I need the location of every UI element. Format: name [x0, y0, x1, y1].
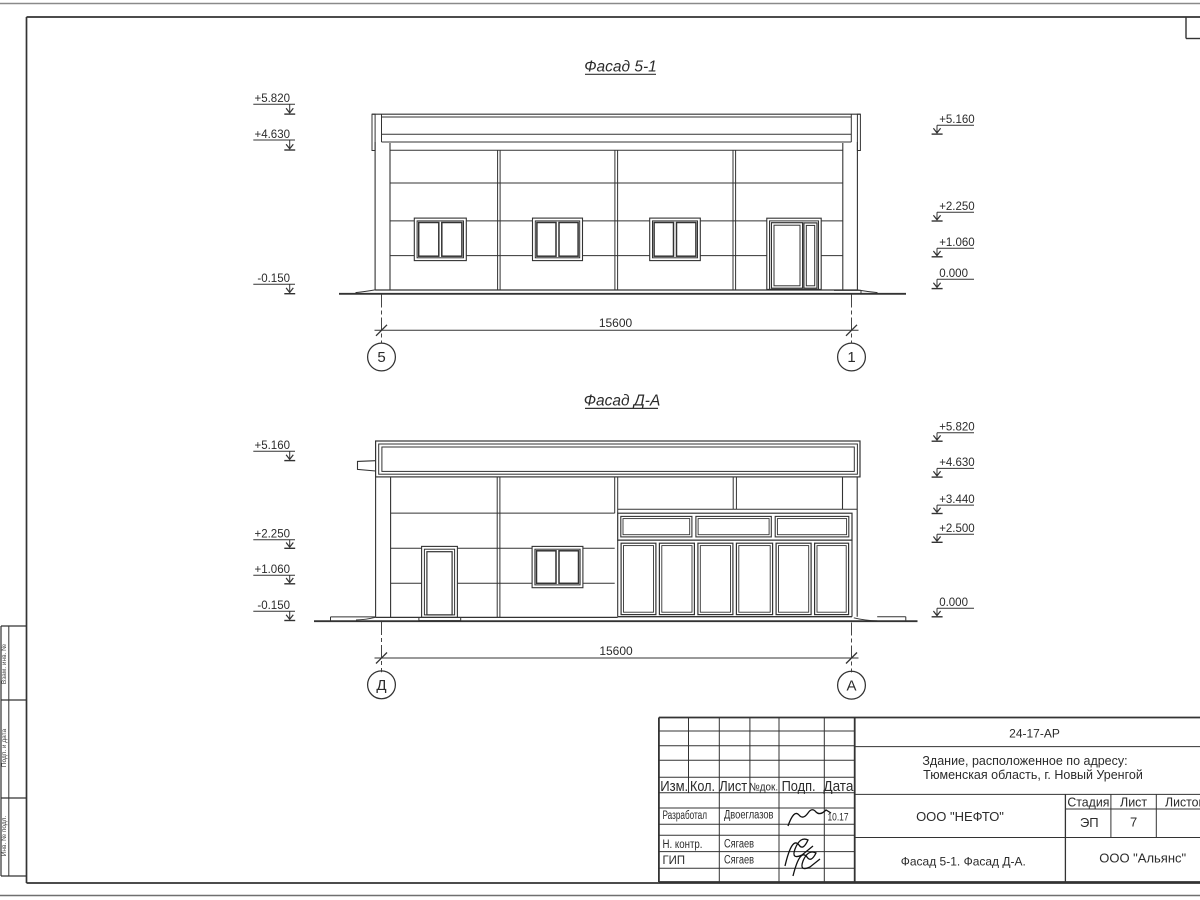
- svg-text:+2.500: +2.500: [939, 523, 975, 535]
- svg-text:Подп.: Подп.: [782, 778, 816, 795]
- svg-text:Взам. инв. №: Взам. инв. №: [1, 644, 8, 684]
- svg-text:15600: 15600: [599, 316, 633, 330]
- svg-text:Дата: Дата: [823, 778, 854, 795]
- svg-text:Изм.: Изм.: [660, 778, 688, 795]
- svg-text:Тюменская область, г. Новый Ур: Тюменская область, г. Новый Уренгой: [923, 768, 1143, 782]
- svg-text:-0.150: -0.150: [257, 600, 290, 612]
- svg-text:Д: Д: [376, 677, 386, 694]
- svg-text:Н. контр.: Н. контр.: [663, 839, 703, 851]
- svg-text:Разработал: Разработал: [663, 810, 708, 822]
- svg-text:Здание, расположенное по адрес: Здание, расположенное по адресу:: [922, 754, 1127, 768]
- svg-text:Инв. № подл.: Инв. № подл.: [1, 816, 8, 857]
- svg-text:Лист: Лист: [719, 778, 747, 795]
- svg-text:7: 7: [1130, 815, 1137, 830]
- svg-text:№док.: №док.: [749, 781, 778, 793]
- svg-text:ООО "НЕФТО": ООО "НЕФТО": [916, 809, 1004, 824]
- svg-text:+1.060: +1.060: [255, 564, 291, 576]
- svg-text:Стадия: Стадия: [1067, 796, 1109, 810]
- svg-text:15600: 15600: [599, 644, 633, 658]
- svg-text:Кол.: Кол.: [690, 778, 715, 795]
- svg-text:Листов: Листов: [1165, 795, 1200, 809]
- svg-text:1: 1: [847, 349, 855, 366]
- svg-text:+4.630: +4.630: [255, 129, 291, 141]
- svg-text:Фасад Д-А: Фасад Д-А: [584, 393, 661, 410]
- svg-text:Лист: Лист: [1120, 795, 1147, 809]
- svg-text:+5.820: +5.820: [255, 93, 291, 105]
- svg-text:+2.250: +2.250: [939, 201, 975, 213]
- svg-text:+3.440: +3.440: [939, 494, 975, 506]
- svg-text:Фасад 5-1: Фасад 5-1: [584, 58, 657, 75]
- svg-text:Сягаев: Сягаев: [724, 839, 754, 851]
- svg-text:ГИП: ГИП: [663, 855, 686, 867]
- svg-text:5: 5: [377, 349, 385, 366]
- svg-text:+5.160: +5.160: [255, 440, 291, 452]
- svg-text:-0.150: -0.150: [257, 273, 290, 285]
- svg-text:+4.630: +4.630: [939, 457, 975, 469]
- svg-text:Подп. и дата: Подп. и дата: [1, 728, 8, 767]
- svg-text:ООО "Альянс": ООО "Альянс": [1099, 851, 1186, 866]
- svg-text:Фасад 5-1. Фасад Д-А.: Фасад 5-1. Фасад Д-А.: [901, 854, 1026, 868]
- svg-text:ЭП: ЭП: [1080, 815, 1099, 830]
- svg-text:+5.820: +5.820: [939, 422, 975, 434]
- svg-text:0.000: 0.000: [939, 597, 968, 609]
- svg-text:+5.160: +5.160: [939, 114, 975, 126]
- svg-text:24-17-АР: 24-17-АР: [1009, 726, 1060, 740]
- svg-text:А: А: [846, 677, 856, 694]
- svg-text:0.000: 0.000: [939, 268, 968, 280]
- svg-text:+1.060: +1.060: [939, 237, 975, 249]
- svg-text:Сягаев: Сягаев: [724, 855, 754, 867]
- svg-text:Двоеглазов: Двоеглазов: [724, 810, 774, 822]
- svg-text:+2.250: +2.250: [255, 529, 291, 541]
